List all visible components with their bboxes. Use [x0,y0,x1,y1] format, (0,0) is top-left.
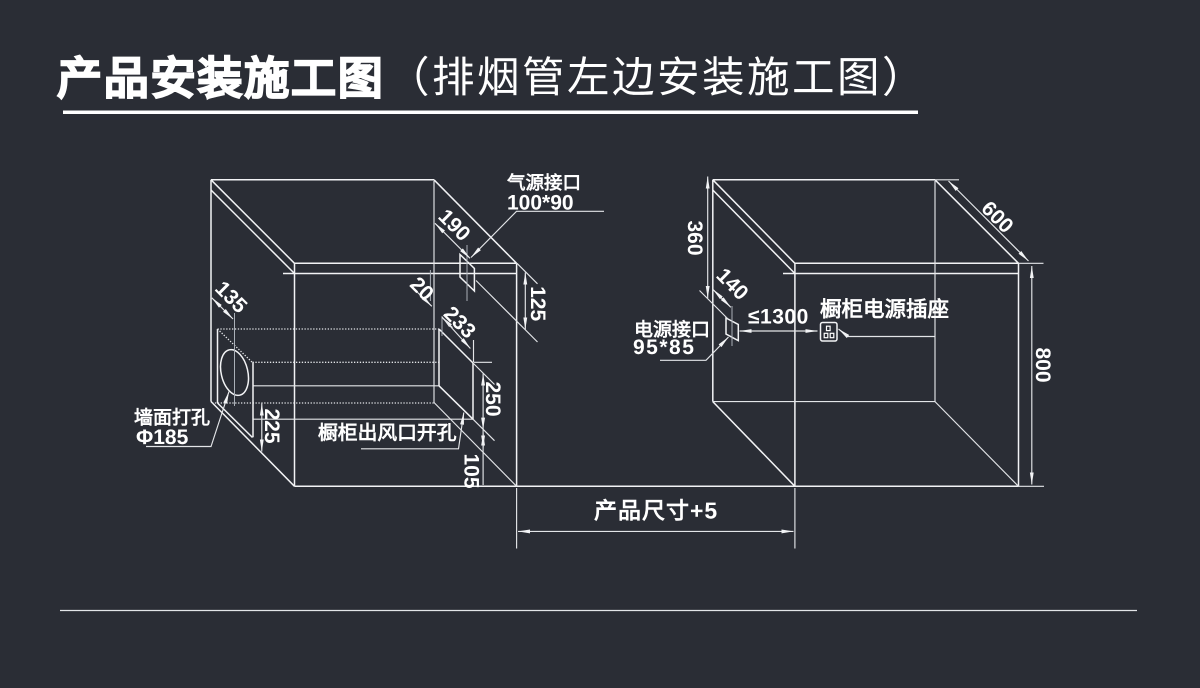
svg-text:橱柜出风口开孔: 橱柜出风口开孔 [318,423,457,445]
svg-text:产品尺寸+5: 产品尺寸+5 [594,498,718,524]
svg-text:225: 225 [260,408,283,443]
svg-text:140: 140 [712,264,753,305]
svg-text:橱柜电源插座: 橱柜电源插座 [820,298,950,322]
svg-text:Φ185: Φ185 [136,426,189,449]
svg-text:105: 105 [460,453,483,488]
svg-text:800: 800 [1031,347,1054,382]
svg-text:95*85: 95*85 [633,336,695,359]
svg-text:360: 360 [683,220,706,255]
svg-text:125: 125 [526,286,549,321]
svg-text:气源接口: 气源接口 [506,172,581,193]
svg-text:≤1300: ≤1300 [748,306,809,329]
svg-text:190: 190 [434,205,475,246]
svg-text:233: 233 [439,302,480,343]
svg-text:产品安装施工图: 产品安装施工图 [57,53,385,104]
svg-text:（排烟管左边安装施工图）: （排烟管左边安装施工图） [387,55,927,102]
svg-text:250: 250 [481,381,504,416]
svg-text:20: 20 [405,273,438,306]
svg-text:135: 135 [210,277,251,318]
svg-text:600: 600 [977,197,1018,238]
